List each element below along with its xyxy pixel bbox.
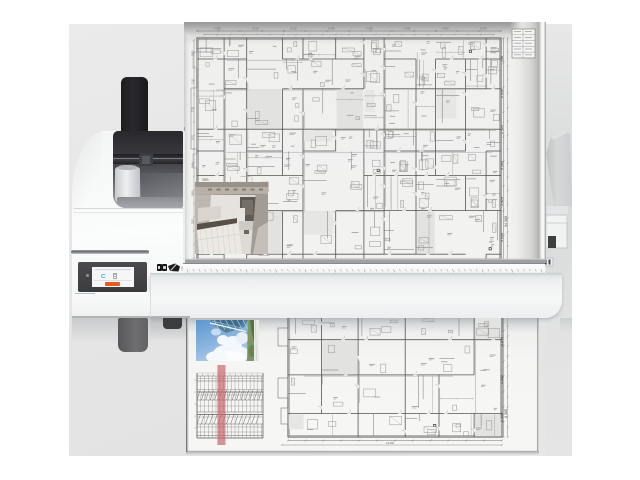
- svg-text:3 305: 3 305: [500, 413, 504, 422]
- svg-text:4 210: 4 210: [252, 27, 259, 31]
- svg-text:4 260: 4 260: [442, 27, 449, 31]
- svg-text:4 200: 4 200: [214, 27, 221, 31]
- svg-text:2137: 2137: [191, 78, 194, 84]
- svg-text:2548: 2548: [191, 162, 194, 168]
- svg-text:2000: 2000: [191, 50, 194, 56]
- svg-text:4 270: 4 270: [480, 27, 487, 31]
- svg-text:4 230: 4 230: [328, 27, 335, 31]
- svg-text:34 300: 34 300: [386, 441, 394, 445]
- svg-text:4 220: 4 220: [290, 27, 297, 31]
- svg-text:2 325: 2 325: [500, 125, 504, 134]
- svg-text:2685: 2685: [191, 190, 194, 196]
- svg-text:3 305: 3 305: [504, 409, 508, 418]
- svg-text:2274: 2274: [191, 106, 194, 112]
- svg-text:2 240: 2 240: [500, 337, 504, 346]
- svg-text:34 300: 34 300: [504, 216, 508, 227]
- svg-text:2411: 2411: [191, 134, 194, 140]
- svg-text:4 250: 4 250: [404, 27, 411, 31]
- svg-text:3 105: 3 105: [500, 161, 504, 170]
- svg-text:1 820: 1 820: [500, 197, 504, 206]
- svg-text:4 240: 4 240: [366, 27, 373, 31]
- svg-text:3 060: 3 060: [500, 375, 504, 384]
- svg-text:148: 148: [500, 56, 504, 62]
- svg-text:2 630: 2 630: [500, 89, 504, 98]
- svg-text:3 250: 3 250: [500, 233, 504, 242]
- svg-text:2822: 2822: [191, 218, 194, 224]
